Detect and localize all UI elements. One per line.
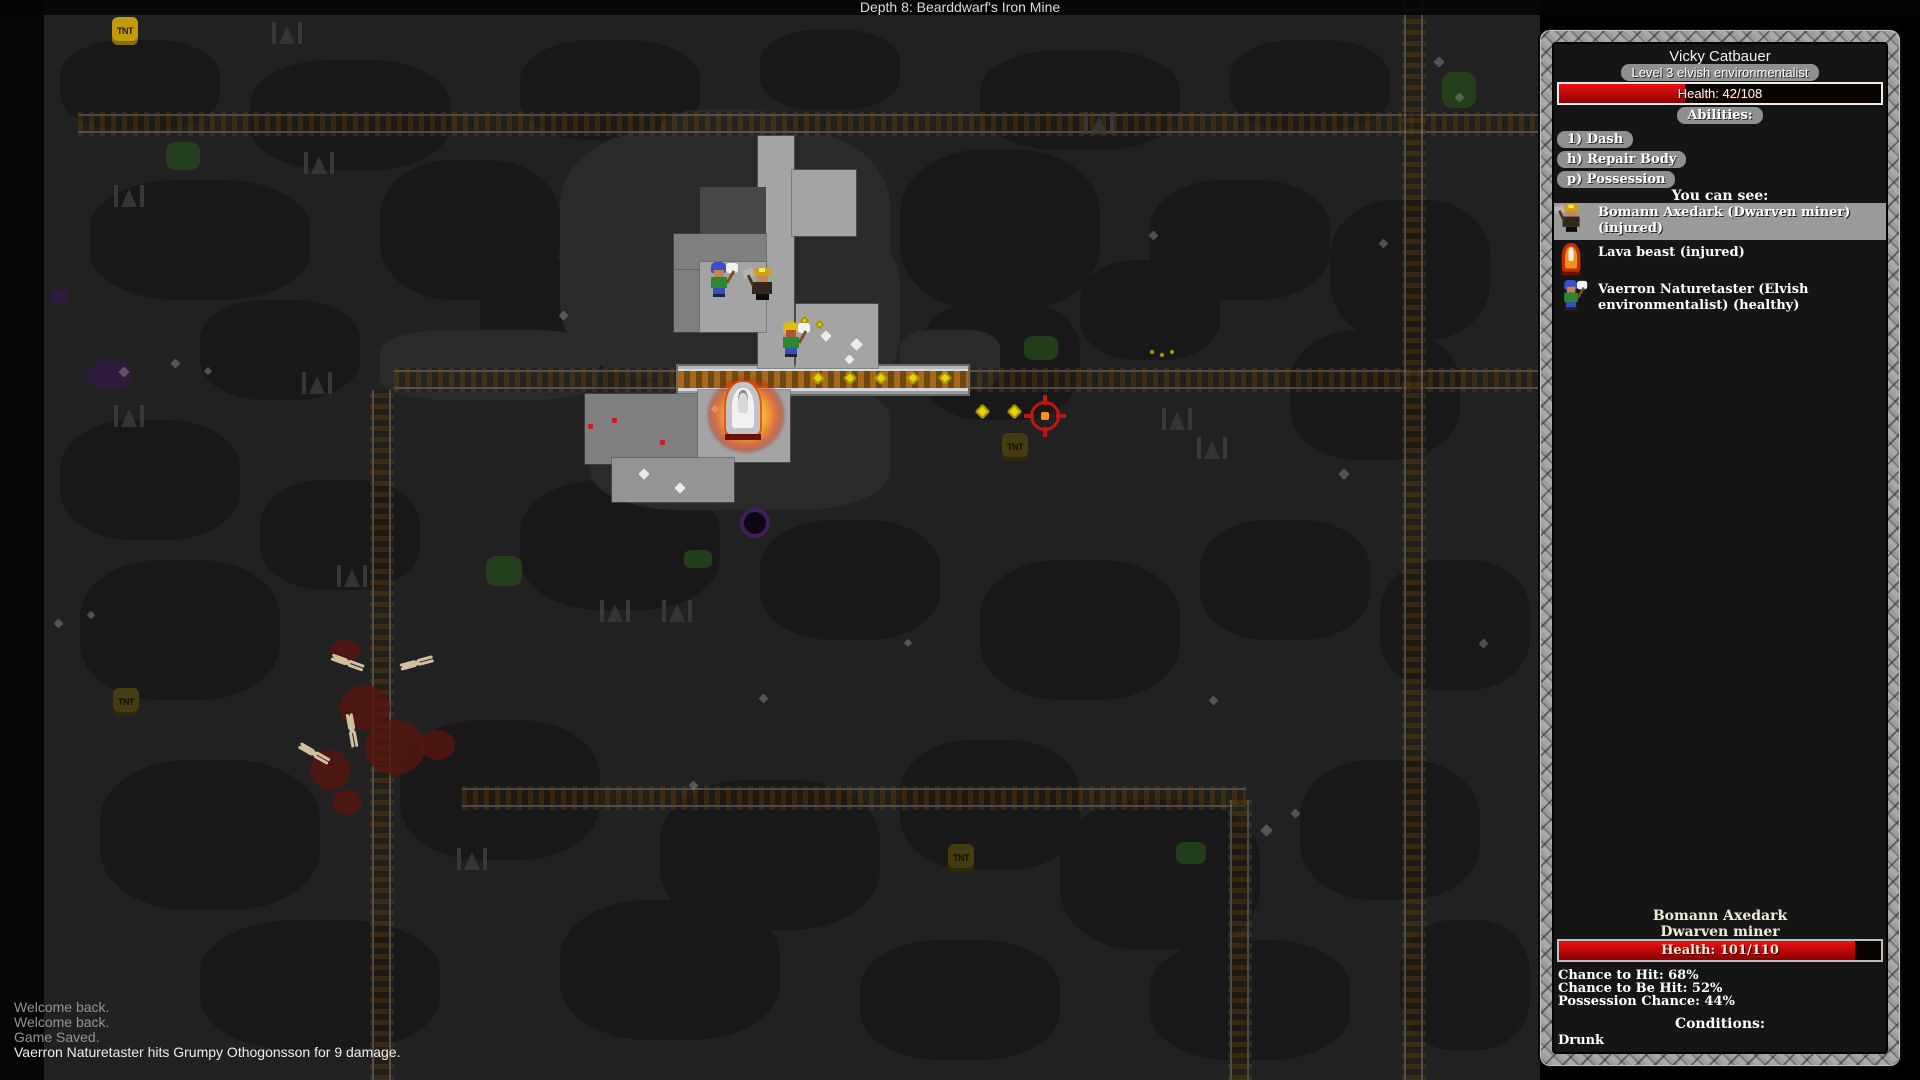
ability-chip[interactable]: h) Repair Body [1557,151,1686,168]
red-debris [588,424,593,429]
cave-blob [100,760,320,910]
cave-blob [200,300,360,400]
bone [402,660,421,669]
floor-tile [674,270,702,332]
tnt-crate[interactable]: TNT [948,844,974,872]
moss-patch [1176,842,1206,864]
sparkle [1433,56,1444,67]
creature-label: Bomann Axedark (Dwarven miner)(injured) [1598,205,1850,237]
lava-beast-icon [1560,243,1582,275]
moss-patch [1024,336,1058,360]
purple-blob [50,290,70,304]
bone [300,744,318,757]
player-health-label: Health: 42/108 [1559,84,1881,103]
abilities-header: Abilities: [1677,107,1762,124]
player-name: Vicky Catbauer [1554,48,1886,65]
cave-blob [760,30,900,110]
floor-tile [796,304,878,368]
log-message: Vaerron Naturetaster hits Grumpy Othogon… [14,1045,401,1060]
sidebar: Vicky Catbauer Level 3 elvish environmen… [1540,30,1900,1066]
elf-icon [1560,280,1582,312]
visible-creature-row[interactable]: Bomann Axedark (Dwarven miner)(injured) [1554,203,1886,240]
red-debris [612,418,617,423]
ability-row: p) Possession [1557,170,1675,188]
sparkle [1209,696,1219,706]
mine-track [78,112,1540,136]
log-message: Welcome back. [14,1000,401,1015]
depth-title: Depth 8: Bearddwarf's Iron Mine [860,0,1060,15]
cave-blob [760,520,940,640]
message-log: Welcome back.Welcome back.Game Saved.Vae… [14,1000,401,1060]
target-name: Bomann Axedark [1554,908,1886,924]
cave-blob [1200,520,1370,640]
you-can-see-header: You can see: [1554,188,1886,204]
moss-patch [166,142,200,170]
purple-circle [740,508,770,538]
map-left-edge [0,0,44,1080]
mine-prop [1195,437,1229,459]
vaerron-naturetaster[interactable] [706,262,732,300]
mine-prop [270,22,304,44]
floor-tile [612,458,734,502]
ability-chip[interactable]: p) Possession [1557,171,1675,188]
log-message: Game Saved. [14,1030,401,1045]
mine-prop [598,600,632,622]
lava-beast[interactable] [723,382,763,440]
mine-track [394,368,684,392]
log-message: Welcome back. [14,1015,401,1030]
condition-label: Drunk [1558,1033,1604,1048]
blood-stain [332,790,362,815]
mine-track [1402,0,1426,1080]
target-health-bar: Health: 101/110 [1557,939,1883,962]
visible-creature-row[interactable]: Vaerron Naturetaster (Elvishenvironmenta… [1554,280,1886,322]
conditions-header: Conditions: [1554,1016,1886,1032]
mine-track [1228,800,1252,1080]
dwarf-miner-icon [1560,203,1582,235]
ability-row: h) Repair Body [1557,150,1686,168]
creature-label: Vaerron Naturetaster (Elvishenvironmenta… [1598,282,1808,314]
cave-blob [980,560,1180,700]
visible-creature-row[interactable]: Lava beast (injured) [1554,243,1886,276]
blood-stain [420,730,455,760]
sparkle [54,619,64,629]
cave-blob [900,150,1100,310]
tnt-crate[interactable]: TNT [113,688,139,716]
tnt-crate[interactable]: TNT [112,17,138,45]
player-health-bar: Health: 42/108 [1557,82,1883,105]
mine-prop [455,848,489,870]
sparkle [1291,809,1301,819]
moss-patch [684,550,712,568]
target-reticle[interactable] [1025,396,1065,436]
mine-track [462,786,1246,810]
depth-title-bar: Depth 8: Bearddwarf's Iron Mine [0,0,1920,15]
mine-prop [112,405,146,427]
sparkle [1260,824,1273,837]
moss-patch [486,556,522,586]
sparkle [1338,468,1349,479]
target-health-label: Health: 101/110 [1559,941,1881,960]
floor-tile [585,394,703,464]
blood-stain [365,720,425,775]
cave-blob [60,420,240,540]
vicky-catbauer[interactable] [778,322,804,360]
game-screen: TNTTNTTNTTNT Depth 8: Bearddwarf's Iron … [0,0,1920,1080]
cave-blob [80,560,280,700]
moss-patch [1442,72,1476,108]
abilities-header-row: Abilities: [1554,106,1886,124]
target-class: Dwarven miner [1554,924,1886,940]
mine-prop [300,372,334,394]
cave-blob [1290,330,1460,460]
sparkle [759,694,769,704]
dungeon-map[interactable]: TNTTNTTNTTNT [0,0,1540,1080]
mine-prop [112,185,146,207]
combat-stat-line: Possession Chance: 44% [1558,994,1735,1009]
cave-blob [1080,260,1220,360]
player-class-chip: Level 3 elvish environmentalist [1621,64,1818,81]
red-debris [660,440,665,445]
mine-prop [1082,112,1116,134]
creature-label: Lava beast (injured) [1598,245,1745,261]
cave-blob [1300,760,1480,900]
tnt-crate[interactable]: TNT [1002,433,1028,461]
player-class-row: Level 3 elvish environmentalist [1554,64,1886,82]
mine-prop [335,565,369,587]
mine-prop [1160,408,1194,430]
sidebar-inner: Vicky Catbauer Level 3 elvish environmen… [1552,42,1888,1054]
floor-tile [792,170,856,236]
mine-prop [302,152,336,174]
ability-chip[interactable]: 1) Dash [1557,131,1633,148]
sparkle [171,359,181,369]
mine-prop [660,600,694,622]
floor-tile [700,187,766,235]
cave-blob [860,940,1060,1060]
mine-track [966,368,1540,392]
grumpy-othogonsson[interactable] [749,266,775,304]
sparkle [904,639,912,647]
ability-row: 1) Dash [1557,130,1633,148]
cave-blob [560,900,780,1040]
